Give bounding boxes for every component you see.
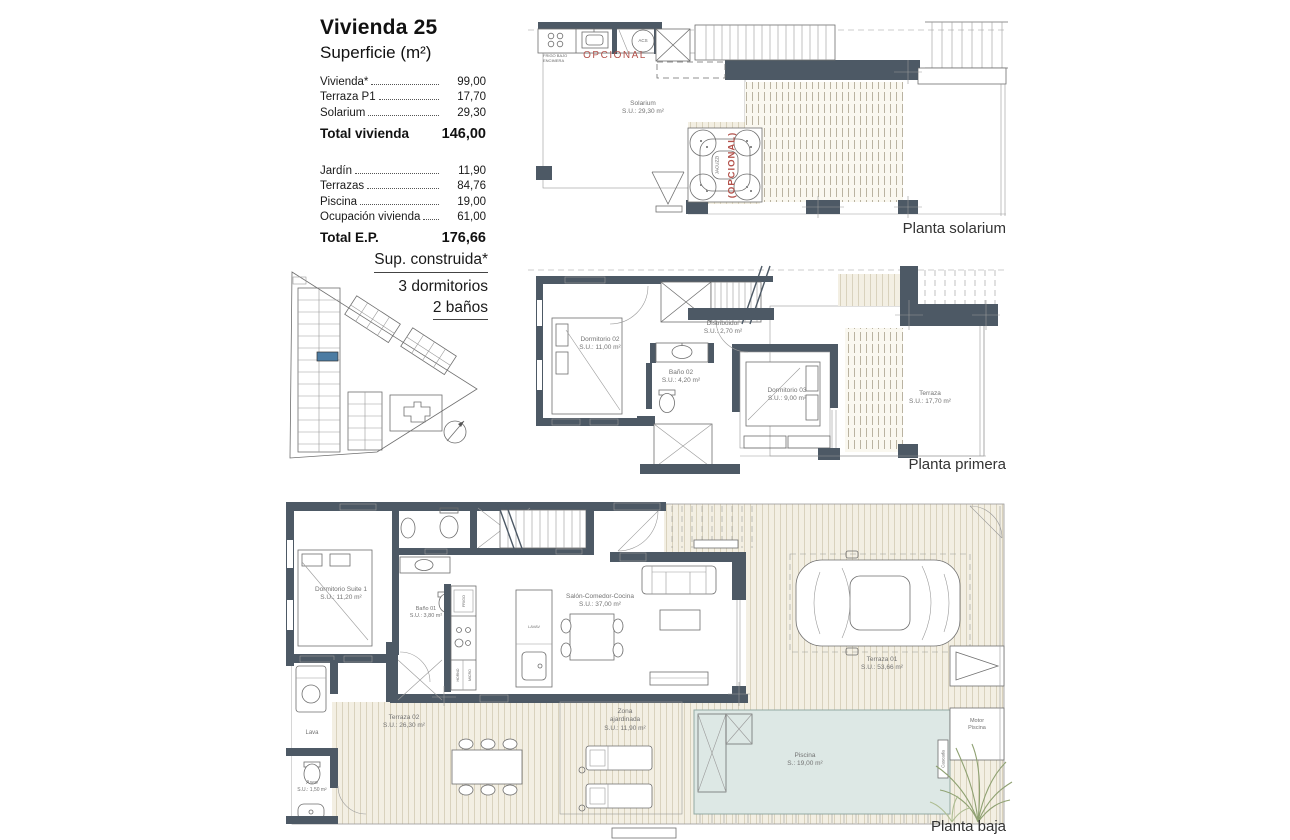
opcional-label: OPCIONAL bbox=[580, 49, 650, 62]
frigo-col-label: FRIGO bbox=[462, 595, 466, 607]
surface-row: Jardín 11,90 bbox=[320, 164, 486, 177]
lava-label: Lava bbox=[294, 730, 330, 738]
motor-label: Motor Piscina bbox=[947, 718, 1007, 732]
surface-total-ep: Total E.P. 176,66 bbox=[320, 230, 486, 246]
dorm02-label: Dormitorio 02 S.U.: 11,00 m² bbox=[560, 336, 640, 353]
solarium-stairs bbox=[656, 25, 835, 61]
toilet bbox=[660, 394, 675, 413]
lavav-label: LAVAV bbox=[518, 624, 550, 629]
dorm03-label: Dormitorio 03 S.U.: 9,00 m² bbox=[747, 387, 827, 404]
floor-label-primera: Planta primera bbox=[866, 456, 1006, 473]
sofa bbox=[642, 566, 716, 594]
surface-panel: Vivienda 25 Superficie (m²) Vivienda* 99… bbox=[320, 16, 486, 249]
jacuzzi bbox=[688, 128, 762, 202]
distribuidor-label: Distribuidor S.U.: 2,70 m² bbox=[683, 320, 763, 337]
surface-total-vivienda: Total vivienda 146,00 bbox=[320, 126, 486, 142]
site-units-row bbox=[401, 328, 457, 375]
sun-lounger bbox=[579, 746, 652, 773]
floor-primera-drawing bbox=[528, 266, 1008, 474]
outdoor-table bbox=[452, 739, 522, 795]
coffee-table bbox=[660, 610, 700, 630]
surface-row: Terrazas 84,76 bbox=[320, 180, 486, 193]
horno-label: HORNO bbox=[456, 668, 460, 681]
dining-table bbox=[561, 614, 623, 660]
built-surface-note: Sup. construida* 3 dormitorios 2 baños bbox=[296, 251, 488, 323]
zona-label: Zona ajardinada S.U.: 11,90 m² bbox=[585, 708, 665, 733]
page-title: Vivienda 25 bbox=[320, 16, 486, 40]
bano02-label: Baño 02 S.U.: 4,20 m² bbox=[641, 369, 721, 386]
dormitorio-03 bbox=[716, 320, 838, 448]
floor-label-solarium: Planta solarium bbox=[866, 220, 1006, 237]
floor-label-baja: Planta baja bbox=[866, 818, 1006, 835]
salon-label: Salón-Comedor-Cocina S.U.: 37,00 m² bbox=[545, 593, 655, 610]
solarium-room-label: Solarium S.U.: 29,30 m² bbox=[603, 100, 683, 117]
car bbox=[790, 551, 970, 655]
compass-icon bbox=[444, 421, 466, 443]
surface-row: Piscina 19,00 bbox=[320, 195, 486, 208]
sun-lounger bbox=[579, 784, 652, 811]
jacuzzi-opcional-label: (OPCIONAL) bbox=[727, 132, 738, 198]
frigo-note: FRIGO BAJO ENCIMERA bbox=[543, 53, 573, 63]
page-subtitle: Superficie (m²) bbox=[320, 43, 486, 63]
garage-vent bbox=[950, 646, 1004, 686]
suite-label: Dormitorio Suite 1 S.U.: 11,20 m² bbox=[301, 586, 381, 603]
bano-02 bbox=[640, 343, 740, 474]
micro-label: MICRO bbox=[468, 669, 472, 681]
washing-machine bbox=[296, 666, 326, 712]
surface-row: Terraza P1 17,70 bbox=[320, 91, 486, 104]
bed bbox=[552, 318, 622, 414]
floorplan-sheet: .wall{fill:#4d5965;stroke:none} .ln{fill… bbox=[0, 0, 1290, 840]
terraza01-label: Terraza 01 S.U.: 53,66 m² bbox=[832, 656, 932, 673]
terraza-p1-label: Terraza S.U.: 17,70 m² bbox=[890, 390, 970, 407]
toilet bbox=[440, 516, 458, 538]
bano01-label: Baño 01 S.U.: 3,80 m² bbox=[386, 606, 466, 620]
tv-bench bbox=[650, 672, 708, 685]
surface-row: Vivienda* 99,00 bbox=[320, 75, 486, 88]
jacuzzi-label: JACUZZI bbox=[715, 156, 720, 175]
surface-row: Solarium 29,30 bbox=[320, 106, 486, 119]
exterior-rows: Jardín 11,90 Terrazas 84,76 Piscina 19,0… bbox=[320, 164, 486, 247]
site-highlighted-unit bbox=[317, 352, 338, 361]
piscina-label: Piscina S.: 19,00 m² bbox=[765, 752, 845, 769]
acs-label: ACS bbox=[632, 38, 654, 44]
surface-row: Ocupación vivienda 61,00 bbox=[320, 211, 486, 224]
baja-stairs bbox=[498, 504, 594, 554]
terraza02-label: Terraza 02 S.U.: 26,30 m² bbox=[354, 714, 454, 731]
cascada-label: Cascada bbox=[941, 750, 946, 768]
aseo-label: Aseo S.U.: 1,50 m² bbox=[287, 780, 337, 793]
